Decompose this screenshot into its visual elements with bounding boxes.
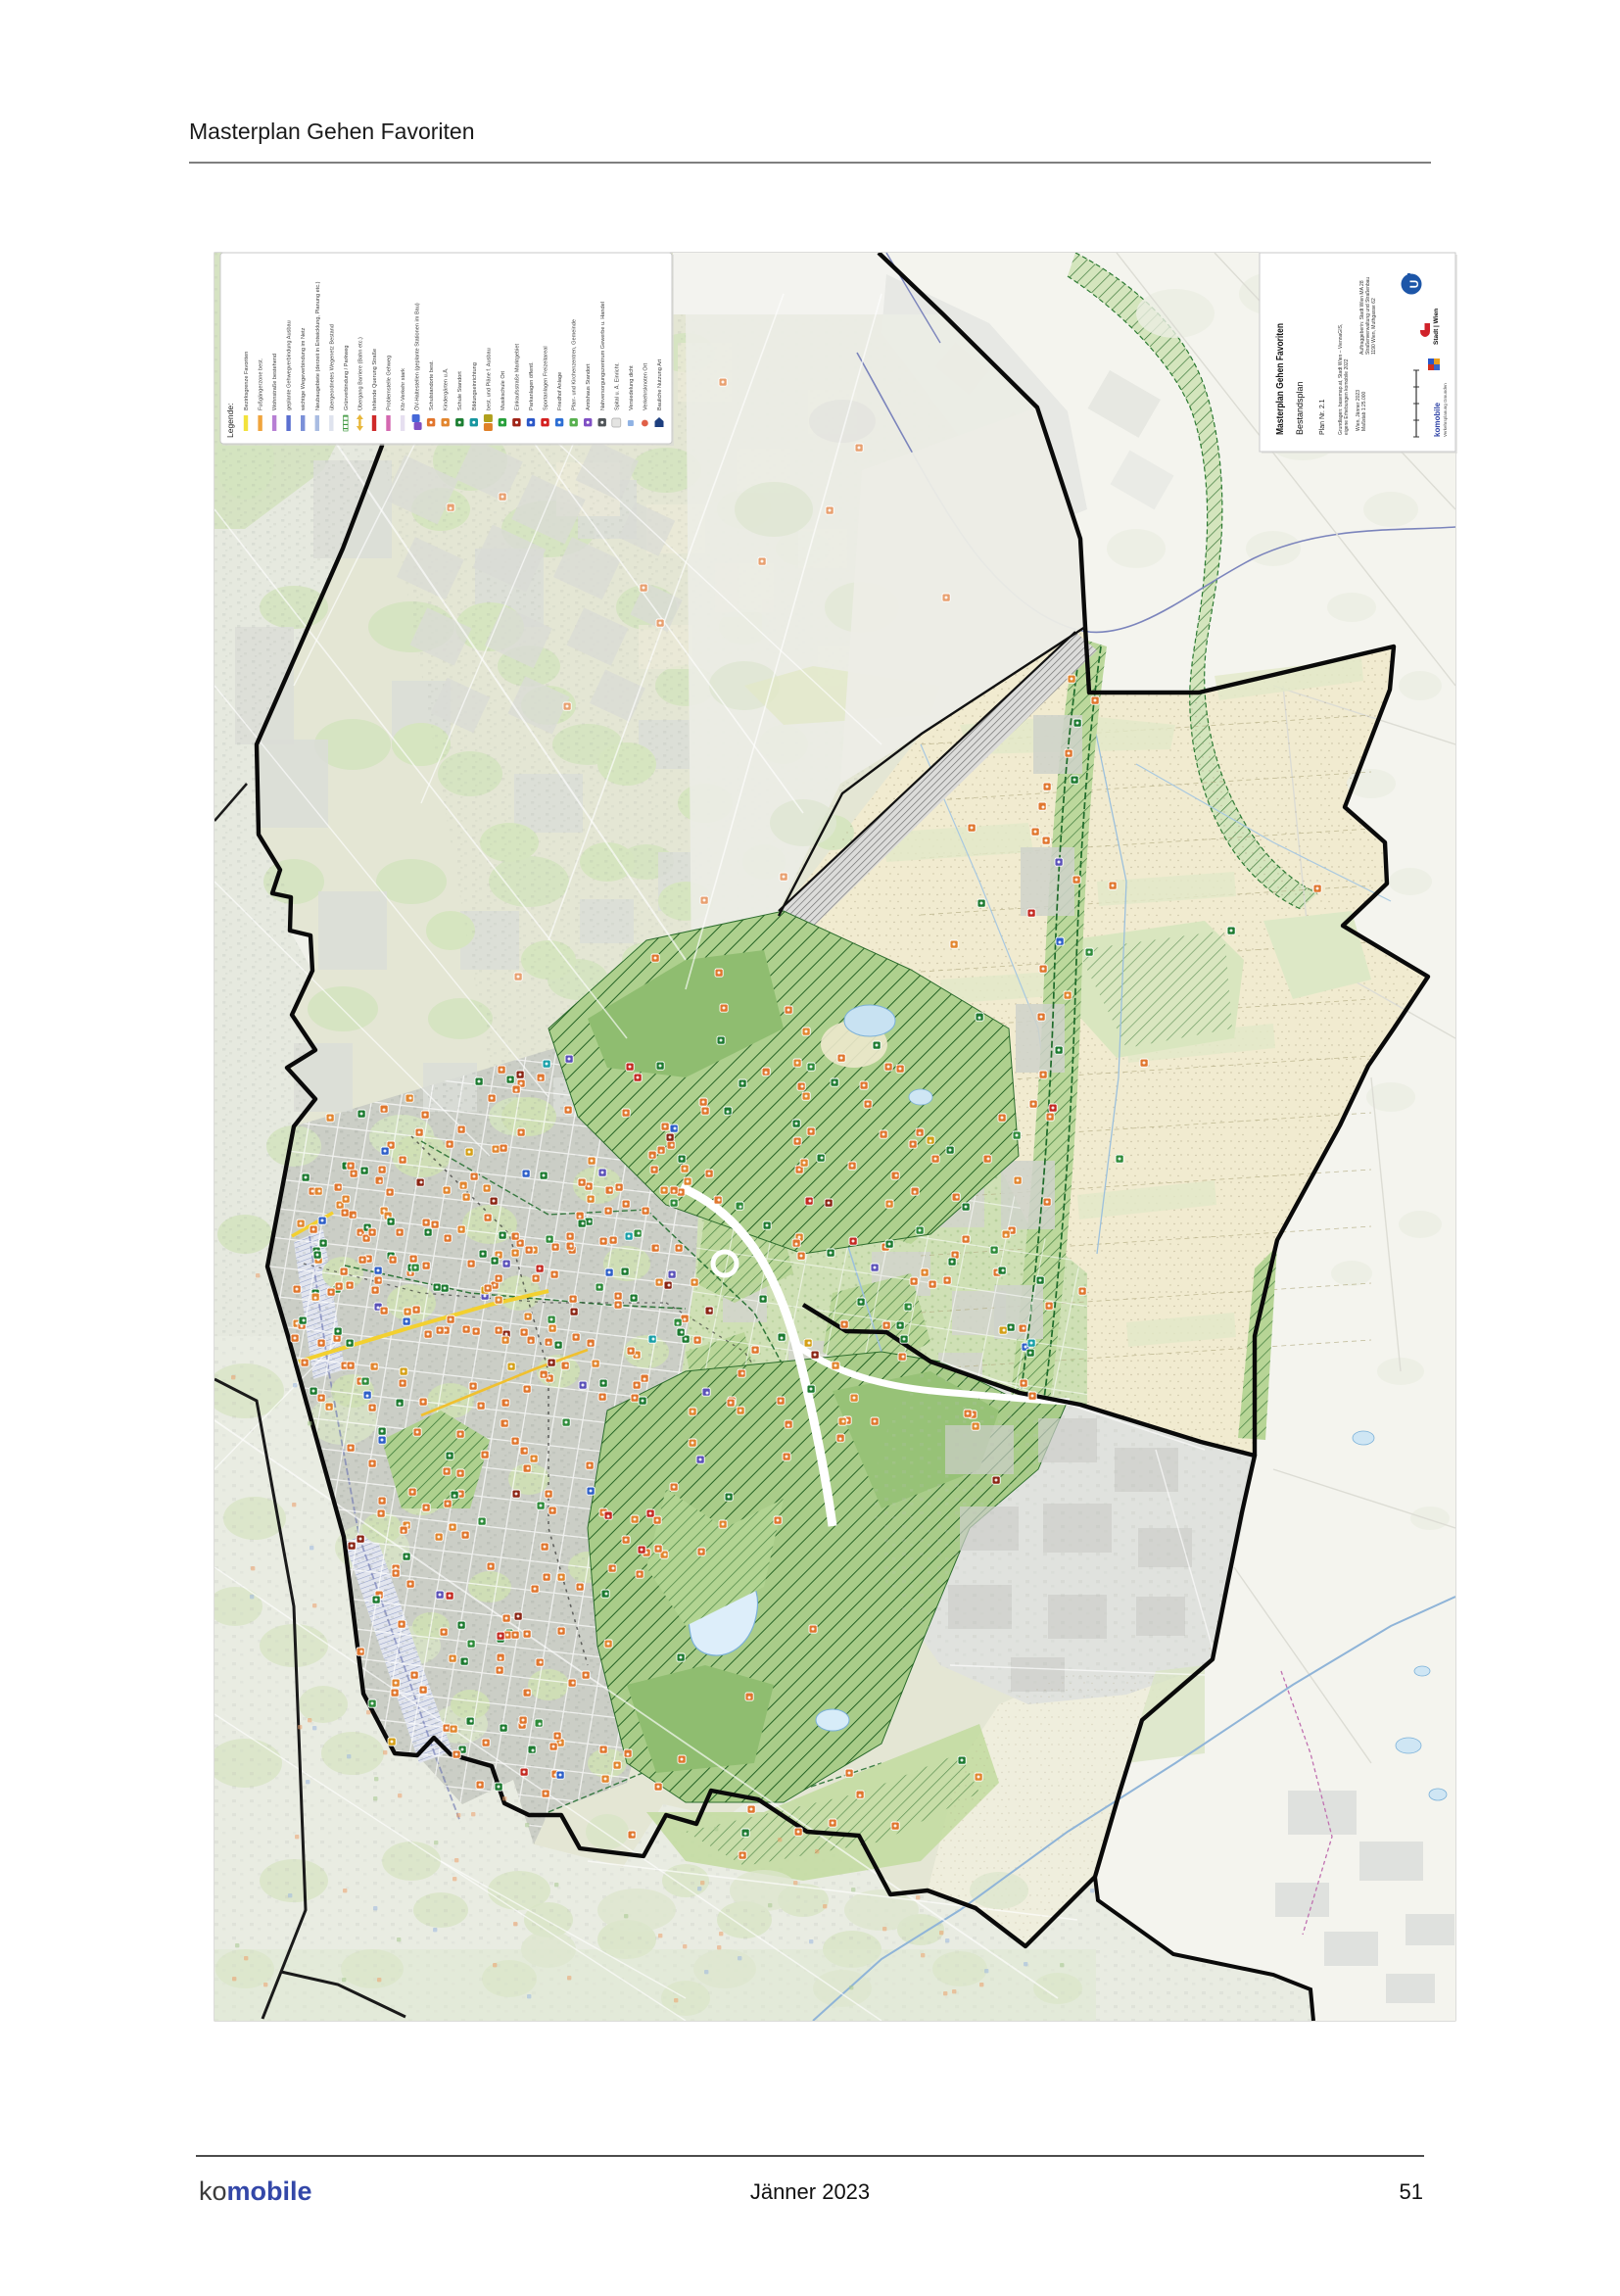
svg-text:Kfz-Verkehr stark: Kfz-Verkehr stark <box>401 368 406 410</box>
svg-text:fehlende Querung Straße: fehlende Querung Straße <box>372 349 378 410</box>
svg-text:eigene Erhebungen komobile 202: eigene Erhebungen komobile 2022 <box>1344 359 1350 435</box>
svg-text:Verkehrsknoten Ort: Verkehrsknoten Ort <box>643 362 648 410</box>
svg-text:komobile: komobile <box>1433 402 1442 437</box>
svg-text:Bildungseinrichtung: Bildungseinrichtung <box>472 362 478 410</box>
svg-text:Parkanlagen öffentl.: Parkanlagen öffentl. <box>529 361 535 410</box>
svg-text:komobile: komobile <box>199 2176 312 2206</box>
svg-text:Fußgängerzone best.: Fußgängerzone best. <box>259 358 264 410</box>
svg-text:Masterplan Gehen Favoriten: Masterplan Gehen Favoriten <box>1274 323 1286 435</box>
svg-text:Friedhof Anlage: Friedhof Anlage <box>557 372 563 410</box>
svg-text:Bezirksgrenze Favoriten: Bezirksgrenze Favoriten <box>244 352 250 410</box>
svg-text:Sportanlagen Freizeitareal: Sportanlagen Freizeitareal <box>544 346 549 410</box>
svg-text:geplante Gehwegverbindung Ausb: geplante Gehwegverbindung Ausbau <box>287 320 293 410</box>
svg-text:Wohnstraße bestehend: Wohnstraße bestehend <box>272 354 278 410</box>
svg-text:wichtige Wegeverbindung im Net: wichtige Wegeverbindung im Netz <box>301 327 307 411</box>
svg-text:Musikschule Ort: Musikschule Ort <box>500 370 506 410</box>
svg-text:U: U <box>1407 280 1421 289</box>
svg-text:Nahversorgungszentrum Gewerbe: Nahversorgungszentrum Gewerbe u. Handel <box>600 302 606 410</box>
svg-text:Legende:: Legende: <box>225 404 235 438</box>
svg-text:Pfarr- und Kirchenzentren, Gem: Pfarr- und Kirchenzentren, Gemeinde <box>572 319 578 410</box>
svg-text:Masterplan Gehen Favoriten: Masterplan Gehen Favoriten <box>189 119 475 144</box>
svg-text:Übergang Barriere (Bahn etc.): Übergang Barriere (Bahn etc.) <box>357 337 363 410</box>
svg-text:Einkaufsstraße Marktgebiet: Einkaufsstraße Marktgebiet <box>515 343 521 410</box>
svg-text:Problemstelle Gehweg: Problemstelle Gehweg <box>387 356 393 410</box>
svg-text:Schulstandorte best.: Schulstandorte best. <box>429 360 435 410</box>
svg-text:Verkehrsplanung Gmunden: Verkehrsplanung Gmunden <box>1443 383 1448 437</box>
svg-text:Amtshaus Standort: Amtshaus Standort <box>586 363 592 410</box>
svg-text:Kindergärten u.Ä.: Kindergärten u.Ä. <box>443 367 450 410</box>
svg-text:Grünverbindung / Parkweg: Grünverbindung / Parkweg <box>344 345 350 410</box>
svg-text:best. und Pläne f. Ausbau: best. und Pläne f. Ausbau <box>486 348 492 410</box>
svg-text:übergeordnetes Wegenetz Bestan: übergeordnetes Wegenetz Bestand <box>329 324 335 410</box>
svg-text:51: 51 <box>1400 2179 1423 2204</box>
svg-text:Schule Standort: Schule Standort <box>457 371 463 410</box>
svg-text:Spital u. Ä. Einricht.: Spital u. Ä. Einricht. <box>613 362 620 410</box>
svg-text:1190 Wien, Muthgasse 62: 1190 Wien, Muthgasse 62 <box>1371 298 1377 355</box>
svg-text:Stadt | Wien: Stadt | Wien <box>1433 309 1440 345</box>
svg-text:Versiedelung dicht: Versiedelung dicht <box>629 365 635 410</box>
svg-text:Plan Nr. 2.1: Plan Nr. 2.1 <box>1319 399 1326 435</box>
svg-text:ÖV-Haltestellen (geplante Stat: ÖV-Haltestellen (geplante Stationen im B… <box>414 303 421 410</box>
svg-text:Bestandsplan: Bestandsplan <box>1295 381 1305 435</box>
svg-text:Bauliche Nutzung Art: Bauliche Nutzung Art <box>657 359 663 410</box>
svg-text:Maßstab 1:25.000: Maßstab 1:25.000 <box>1361 391 1367 431</box>
svg-text:Jänner 2023: Jänner 2023 <box>750 2179 870 2204</box>
svg-text:Neubaugebiete (derzeit in Entw: Neubaugebiete (derzeit in Entwicklung, P… <box>315 281 321 410</box>
